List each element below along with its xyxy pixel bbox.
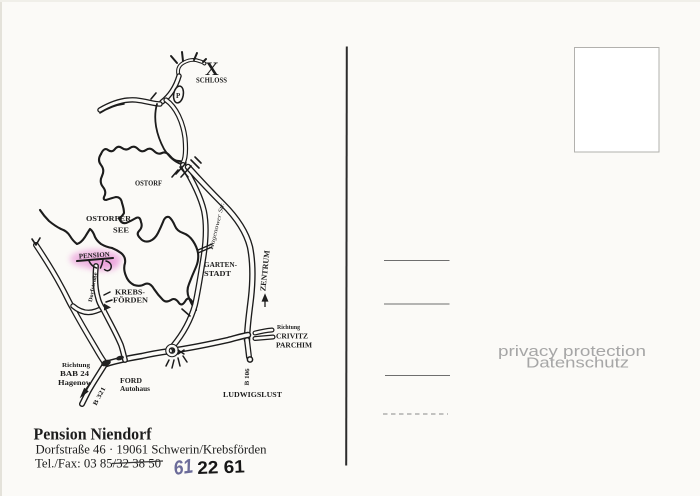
svg-text:SCHLOSS: SCHLOSS (196, 77, 227, 85)
svg-text:SEE: SEE (113, 226, 129, 235)
svg-text:Hagenow: Hagenow (58, 379, 93, 387)
svg-text:OSTORF: OSTORF (135, 179, 162, 188)
svg-text:61: 61 (172, 455, 194, 479)
svg-text:Richtung: Richtung (277, 324, 301, 331)
svg-text:Richtung: Richtung (62, 362, 91, 369)
svg-text:Dorfstraße 46 · 19061 Schwerin: Dorfstraße 46 · 19061 Schwerin/Krebsförd… (36, 443, 268, 457)
svg-text:Tel./Fax: 03 85/32 38 50: Tel./Fax: 03 85/32 38 50 (35, 457, 161, 471)
svg-text:LUDWIGSLUST: LUDWIGSLUST (223, 390, 282, 399)
svg-text:FÖRDEN: FÖRDEN (113, 296, 149, 305)
svg-text:BAB 24: BAB 24 (60, 370, 90, 378)
svg-text:Datenschutz: Datenschutz (526, 356, 629, 372)
svg-text:B 106: B 106 (244, 368, 252, 385)
svg-text:OSTORFER: OSTORFER (86, 214, 132, 223)
svg-text:FORD: FORD (120, 376, 143, 385)
svg-text:Autohaus: Autohaus (120, 386, 150, 393)
svg-text:STADT: STADT (204, 269, 231, 278)
svg-text:GARTEN-: GARTEN- (204, 260, 237, 269)
svg-text:P: P (176, 92, 181, 100)
svg-text:22 61: 22 61 (197, 456, 245, 478)
svg-text:PARCHIM: PARCHIM (276, 341, 312, 350)
svg-text:Pension Niendorf: Pension Niendorf (34, 425, 152, 444)
svg-text:CRIVITZ: CRIVITZ (276, 332, 308, 341)
